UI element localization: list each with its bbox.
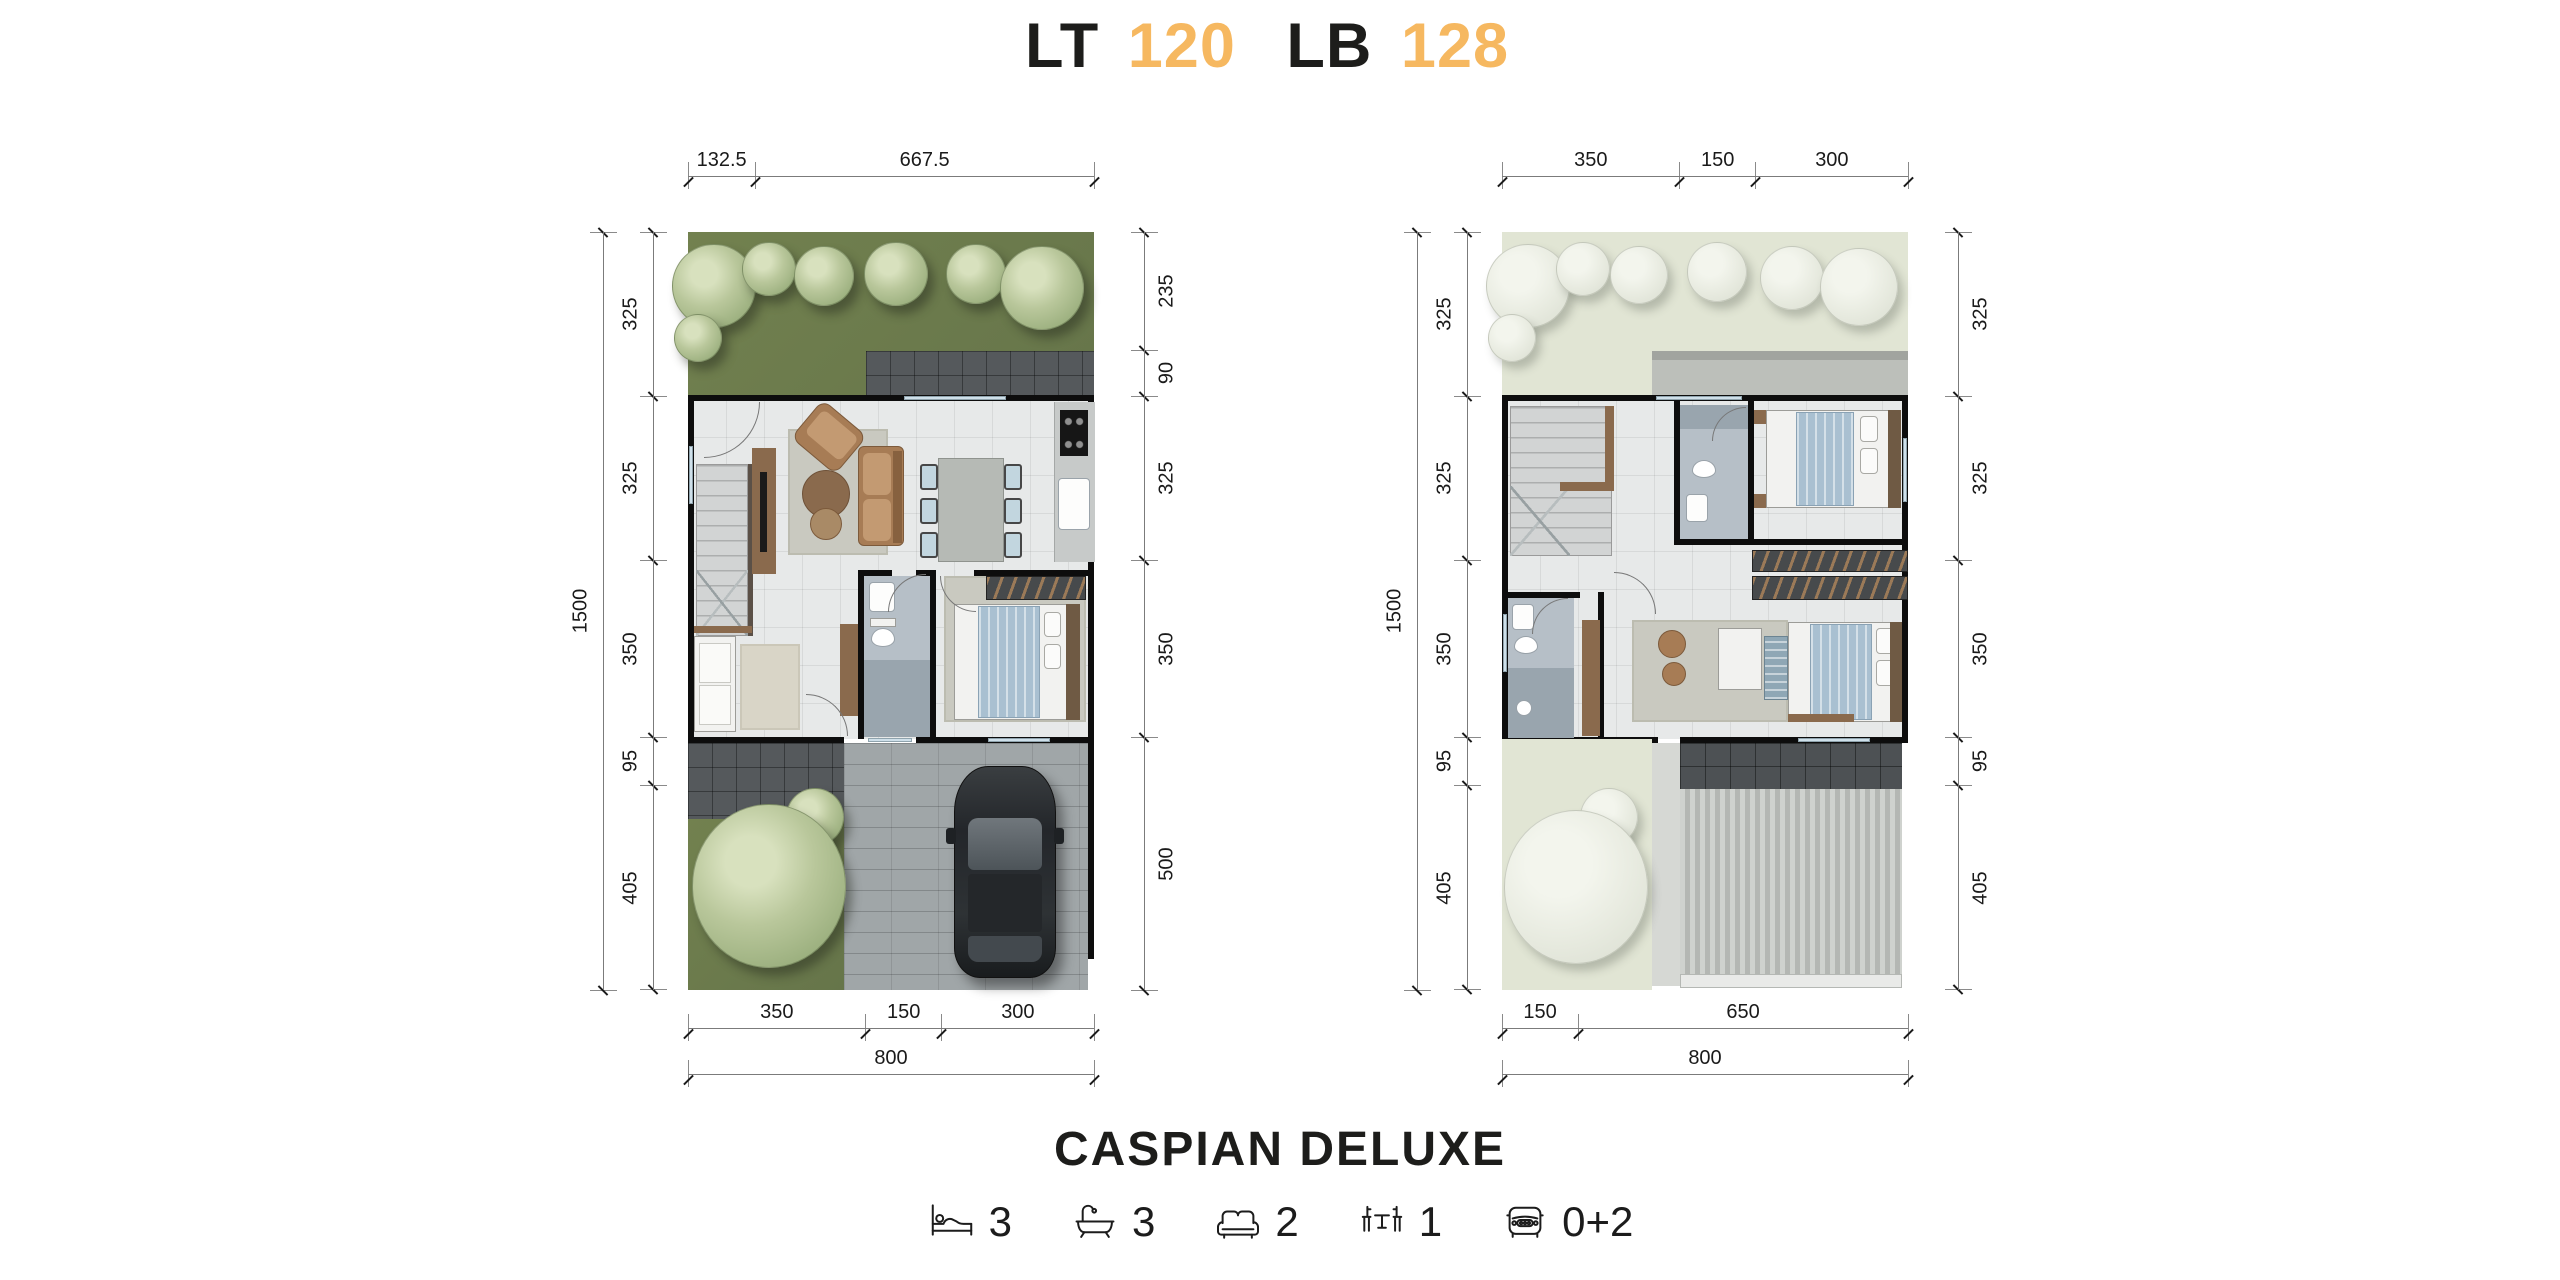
dimension-label: 150 [1523,1001,1556,1024]
wall [1088,743,1094,959]
bed-blanket [1796,412,1854,506]
dining-chair [1004,498,1022,524]
dimension-segment: 95 [1946,737,1990,785]
foot-bench [1788,714,1854,722]
dining-chair [920,464,938,490]
dimension-segment: 350 [688,995,866,1041]
tree-faded [1488,314,1536,362]
dimension-label: 325 [1970,297,1993,330]
dimension-segment: 405 [1436,785,1480,990]
dimension-top: 132.5667.5 [688,143,1094,189]
feature-dining: 1 [1357,1198,1442,1246]
dimension-segment: 350 [1436,560,1480,737]
shower-drain [1516,700,1532,716]
kitchen-sink [1058,478,1090,530]
cushion [863,453,891,495]
tree [672,244,756,328]
roof-gutter [1680,974,1902,988]
dimension-segment: 300 [1756,143,1908,189]
tree [946,244,1006,304]
dimension-segment: 325 [622,396,666,560]
tree [692,804,846,968]
car [954,766,1056,978]
dimension-segment: 300 [942,995,1094,1041]
tree [1000,246,1084,330]
wardrobe [1752,576,1908,600]
nook-rug [740,644,800,730]
dimension-segment: 325 [622,232,666,396]
tree [864,242,928,306]
wall [688,395,1094,401]
toilet-tank [870,618,896,627]
dimension-label: 325 [1434,462,1457,495]
dining-chair [1004,464,1022,490]
window [689,446,693,504]
tall-cabinet [1582,620,1600,736]
dimension-label: 650 [1726,1001,1759,1024]
wardrobe [1752,550,1908,572]
tree-faded [1820,248,1898,326]
dining-chair [1004,532,1022,558]
dimension-segment: 150 [866,995,942,1041]
ground-floor-plan [688,232,1094,990]
feature-value: 3 [1132,1198,1155,1246]
dimension-label: 667.5 [900,149,950,172]
tree-faded [1556,242,1610,296]
wall [930,570,936,739]
dimension-left: 32532535095405 [622,232,666,990]
dimension-label: 405 [1970,871,1993,904]
car-icon [1500,1200,1550,1245]
nightstand [1754,494,1766,508]
page-title: LT 120 LB 128 [0,10,2560,82]
dimension-label: 800 [874,1047,907,1070]
tree-faded [1687,242,1747,302]
roof-ledge [1652,743,1680,986]
window [868,738,912,742]
bath-sink [1512,604,1534,630]
dimension-segment: 350 [622,560,666,737]
dimension-segment: 325 [1946,396,1990,560]
tree-faded [1610,246,1668,304]
dimension-label: 800 [1688,1047,1721,1070]
shower-area [864,660,930,737]
dimension-label: 325 [1156,462,1179,495]
feature-value: 3 [989,1198,1012,1246]
bed-blanket [1810,624,1872,720]
window [1903,438,1907,502]
dimension-label: 1500 [1384,589,1407,634]
balcony-strip [1680,743,1902,789]
cushion [699,643,731,683]
dimension-label: 500 [1156,847,1179,880]
dimension-label: 95 [1970,750,1993,772]
cushion [699,685,731,725]
dining-table [938,458,1004,562]
house-type-title: CASPIAN DELUXE [0,1122,2560,1177]
dining-chair [920,498,938,524]
bed-icon [927,1200,977,1245]
headboard [1890,622,1902,722]
pouf [1658,630,1686,658]
dimension-segment: 405 [1946,785,1990,990]
dimension-label: 1500 [570,589,593,634]
dimension-label: 350 [620,632,643,665]
window [904,396,1006,400]
stair-winder [1510,486,1570,556]
dimension-label: 325 [620,297,643,330]
tree [794,246,854,306]
second-floor-group: 350150300 1500 32532535095405 3253253509… [1372,95,2012,1105]
wall [1674,539,1754,545]
dimension-label: 325 [620,462,643,495]
dimension-label: 95 [620,750,643,772]
dimension-label: 325 [1434,297,1457,330]
pillow [1044,612,1061,637]
headboard [1888,410,1901,508]
dining-icon [1357,1200,1407,1245]
dimension-right: 23590325350500 [1132,232,1176,990]
dimension-segment: 235 [1132,232,1176,351]
pillow [1860,448,1878,474]
lt-value: 120 [1128,11,1236,81]
vanity-cabinet [840,624,858,716]
sofa [858,446,904,546]
dimension-segment: 95 [1436,737,1480,785]
dimension-label: 132.5 [697,149,747,172]
dimension-segment: 350 [1132,560,1176,737]
carport-roof [1680,789,1902,974]
car-roof [968,874,1042,932]
feature-bath: 3 [1070,1198,1155,1246]
toilet [871,628,895,647]
shelf [694,626,752,633]
dimension-label: 325 [1970,462,1993,495]
dimension-label: 300 [1815,149,1848,172]
dimension-segment: 800 [1502,1041,1908,1087]
tree [674,314,722,362]
dimension-segment: 95 [622,737,666,785]
lb-label: LB [1286,11,1372,81]
nightstand [1754,410,1766,424]
pillow [1860,416,1878,442]
lb-value: 128 [1401,11,1509,81]
wall [1748,539,1908,545]
dimension-segment: 90 [1132,351,1176,396]
headboard [1066,604,1080,720]
toilet [1514,636,1538,654]
car-mirror [946,828,956,844]
coffee-table-small [810,508,842,540]
dimension-segment: 1500 [1386,232,1430,990]
dimension-label: 235 [1156,275,1179,308]
car-windshield [968,818,1042,870]
dimension-segment: 350 [1502,143,1680,189]
feature-car: 0+2 [1500,1198,1633,1246]
dimension-bottom-total: 800 [688,1041,1094,1087]
ground-floor-group: 132.5667.5 1500 32532535095405 235903253… [558,95,1198,1105]
stair-railing [1605,406,1614,491]
dimension-label: 150 [1701,149,1734,172]
toilet [1692,460,1716,478]
dimension-bottom: 350150300 [688,995,1094,1041]
lt-label: LT [1025,11,1099,81]
dimension-segment: 325 [1132,396,1176,560]
dimension-segment: 150 [1680,143,1756,189]
dimension-right: 32532535095405 [1946,232,1990,990]
dresser [1718,628,1762,690]
dimension-label: 405 [620,871,643,904]
dimension-label: 350 [1574,149,1607,172]
dining-chair [920,532,938,558]
dimension-top: 350150300 [1502,143,1908,189]
dimension-bottom: 150650 [1502,995,1908,1041]
dimension-segment: 325 [1946,232,1990,396]
second-floor-plan [1502,232,1908,990]
feature-row: 33210+2 [0,1198,2560,1246]
window [1656,396,1742,400]
pillow [1044,644,1061,669]
feature-value: 1 [1419,1198,1442,1246]
dimension-label: 300 [1001,1001,1034,1024]
dimension-segment: 350 [1946,560,1990,737]
dimension-label: 405 [1434,871,1457,904]
dimension-segment: 325 [1436,232,1480,396]
sofa-icon [1213,1200,1263,1245]
bath-icon [1070,1200,1120,1245]
feature-bed: 3 [927,1198,1012,1246]
tree [742,242,796,296]
bench-sofa [694,636,736,732]
floorplan-page: LT 120 LB 128 132.5667.5 1500 3253253509… [0,0,2560,1280]
dimension-segment: 1500 [572,232,616,990]
window [1503,614,1507,672]
dimension-segment: 667.5 [755,143,1094,189]
dimension-label: 350 [760,1001,793,1024]
roof-canopy [1652,351,1908,399]
tv-screen [760,472,767,552]
dimension-segment: 132.5 [688,143,755,189]
pouf [1662,662,1686,686]
car-mirror [1054,828,1064,844]
feature-value: 2 [1275,1198,1298,1246]
cushion [863,499,891,541]
dimension-label: 350 [1434,632,1457,665]
bed-blanket [978,606,1040,718]
dimension-label: 350 [1970,632,1993,665]
dimension-segment: 500 [1132,737,1176,990]
dimension-left-total: 1500 [572,232,616,990]
sofa-back [893,451,902,543]
tree-faded [1504,810,1648,964]
dimension-segment: 800 [688,1041,1094,1087]
wardrobe [986,576,1086,600]
dimension-segment: 325 [1436,396,1480,560]
window [1798,738,1870,742]
stove [1060,410,1088,456]
dimension-label: 95 [1434,750,1457,772]
dimension-label: 90 [1156,362,1179,384]
bench [1764,636,1788,700]
feature-value: 0+2 [1562,1198,1633,1246]
dimension-segment: 650 [1578,995,1908,1041]
tree-faded [1760,246,1824,310]
bath-sink [1686,494,1708,522]
dimension-label: 150 [887,1001,920,1024]
dimension-segment: 405 [622,785,666,990]
feature-sofa: 2 [1213,1198,1298,1246]
dimension-segment: 150 [1502,995,1578,1041]
car-rear-window [968,936,1042,962]
terrace [866,351,1094,399]
tree-faded [1486,244,1570,328]
window [988,738,1050,742]
dimension-label: 350 [1156,632,1179,665]
dimension-bottom-total: 800 [1502,1041,1908,1087]
dimension-left-total: 1500 [1386,232,1430,990]
dimension-left: 32532535095405 [1436,232,1480,990]
